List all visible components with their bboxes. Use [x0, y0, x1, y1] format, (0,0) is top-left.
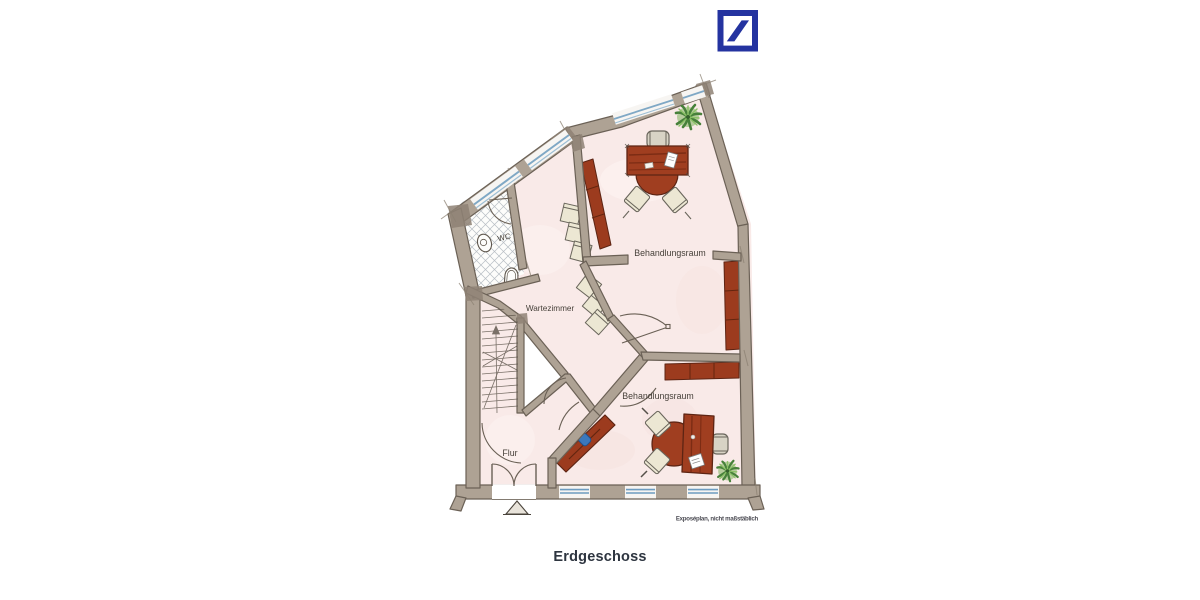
svg-text:Behandlungsraum: Behandlungsraum — [622, 391, 693, 401]
svg-text:Wartezimmer: Wartezimmer — [526, 304, 575, 313]
svg-text:Behandlungsraum: Behandlungsraum — [634, 248, 705, 258]
svg-text:Flur: Flur — [502, 448, 517, 458]
svg-text:Exposéplan, nicht maßstäblich: Exposéplan, nicht maßstäblich — [676, 516, 759, 523]
svg-text:Erdgeschoss: Erdgeschoss — [553, 549, 646, 565]
